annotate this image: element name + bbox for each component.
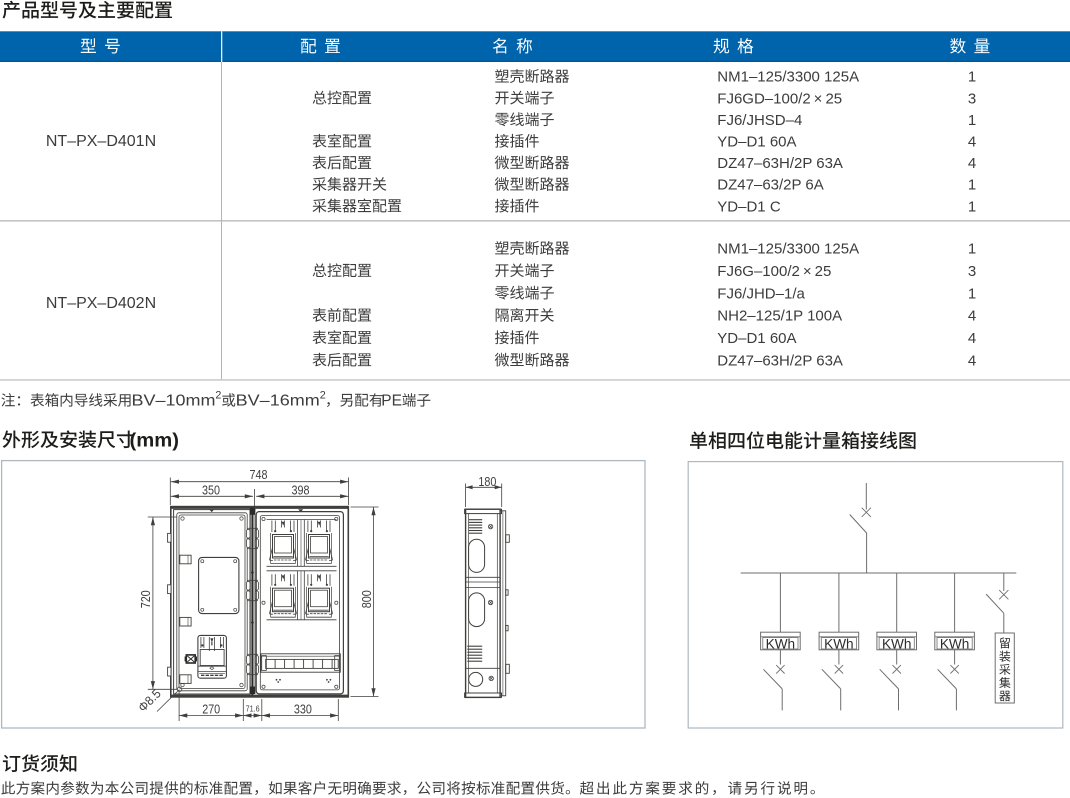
svg-text:(mm): (mm): [130, 431, 180, 452]
svg-text:Φ8.5: Φ8.5: [136, 686, 164, 714]
svg-text:BV–10mm: BV–10mm: [132, 393, 216, 410]
svg-text:1: 1: [968, 112, 976, 129]
svg-text:3: 3: [968, 90, 976, 107]
svg-text:180: 180: [478, 475, 496, 489]
svg-text:800: 800: [360, 590, 374, 608]
svg-text:NH2–125/1P 100A: NH2–125/1P 100A: [717, 308, 842, 325]
svg-text:FJ6G–100/2 × 25: FJ6G–100/2 × 25: [717, 263, 831, 280]
svg-text:YD–D1 C: YD–D1 C: [717, 198, 781, 215]
svg-text:YD–D1 60A: YD–D1 60A: [717, 330, 796, 347]
svg-text:YD–D1 60A: YD–D1 60A: [717, 134, 796, 151]
svg-text:KWh: KWh: [766, 636, 795, 651]
svg-text:3: 3: [968, 263, 976, 280]
svg-text:398: 398: [292, 484, 310, 498]
svg-text:1: 1: [968, 177, 976, 194]
svg-text:NM1–125/3300 125A: NM1–125/3300 125A: [717, 69, 859, 86]
svg-text:DZ47–63/2P 6A: DZ47–63/2P 6A: [717, 177, 823, 194]
svg-text:71.6: 71.6: [246, 704, 260, 714]
svg-text:4: 4: [968, 134, 976, 151]
svg-text:BV–16mm: BV–16mm: [236, 393, 320, 410]
svg-text:4: 4: [968, 352, 976, 369]
svg-text:1: 1: [968, 69, 976, 86]
svg-text:DZ47–63H/2P 63A: DZ47–63H/2P 63A: [717, 352, 843, 369]
svg-text:1: 1: [968, 285, 976, 302]
svg-text:KWh: KWh: [940, 636, 969, 651]
svg-text:KWh: KWh: [882, 636, 911, 651]
svg-text:2: 2: [320, 389, 326, 401]
svg-text:720: 720: [139, 590, 153, 608]
svg-text:4: 4: [968, 308, 976, 325]
svg-text:2: 2: [215, 389, 221, 401]
svg-text:NM1–125/3300 125A: NM1–125/3300 125A: [717, 241, 859, 258]
svg-text:FJ6GD–100/2 × 25: FJ6GD–100/2 × 25: [717, 90, 842, 107]
svg-text:748: 748: [250, 468, 268, 482]
svg-text:PE: PE: [381, 393, 402, 410]
svg-text:4: 4: [968, 330, 976, 347]
svg-text:330: 330: [294, 702, 312, 716]
svg-text:FJ6/JHD–1/a: FJ6/JHD–1/a: [717, 285, 805, 302]
svg-text:DZ47–63H/2P 63A: DZ47–63H/2P 63A: [717, 155, 843, 172]
svg-text:270: 270: [202, 702, 220, 716]
svg-text:NT–PX–D402N: NT–PX–D402N: [46, 295, 156, 312]
svg-text:350: 350: [202, 484, 220, 498]
svg-text:NT–PX–D401N: NT–PX–D401N: [46, 133, 156, 150]
svg-text:1: 1: [968, 198, 976, 215]
svg-text:KWh: KWh: [824, 636, 853, 651]
svg-text:4: 4: [968, 155, 976, 172]
svg-text:FJ6/JHSD–4: FJ6/JHSD–4: [717, 112, 802, 129]
svg-text:1: 1: [968, 241, 976, 258]
